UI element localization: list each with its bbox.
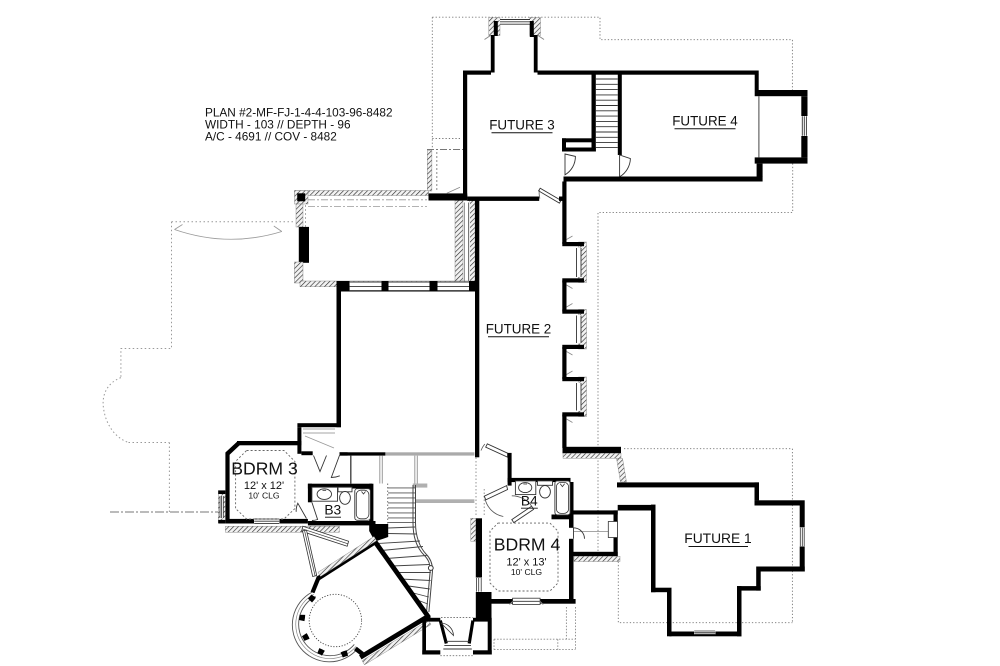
- svg-text:BDRM 4: BDRM 4: [494, 535, 561, 555]
- svg-text:FUTURE 4: FUTURE 4: [672, 114, 738, 129]
- svg-text:FUTURE 1: FUTURE 1: [684, 531, 751, 546]
- svg-text:BDRM 3: BDRM 3: [231, 459, 298, 479]
- svg-text:10' CLG: 10' CLG: [511, 567, 543, 577]
- svg-text:FUTURE 3: FUTURE 3: [489, 118, 554, 133]
- svg-text:10' CLG: 10' CLG: [248, 490, 280, 500]
- svg-text:A/C - 4691 // COV - 8482: A/C - 4691 // COV - 8482: [205, 130, 337, 144]
- svg-text:B3: B3: [324, 503, 341, 518]
- svg-text:FUTURE 2: FUTURE 2: [486, 322, 551, 337]
- svg-text:B4: B4: [521, 494, 538, 509]
